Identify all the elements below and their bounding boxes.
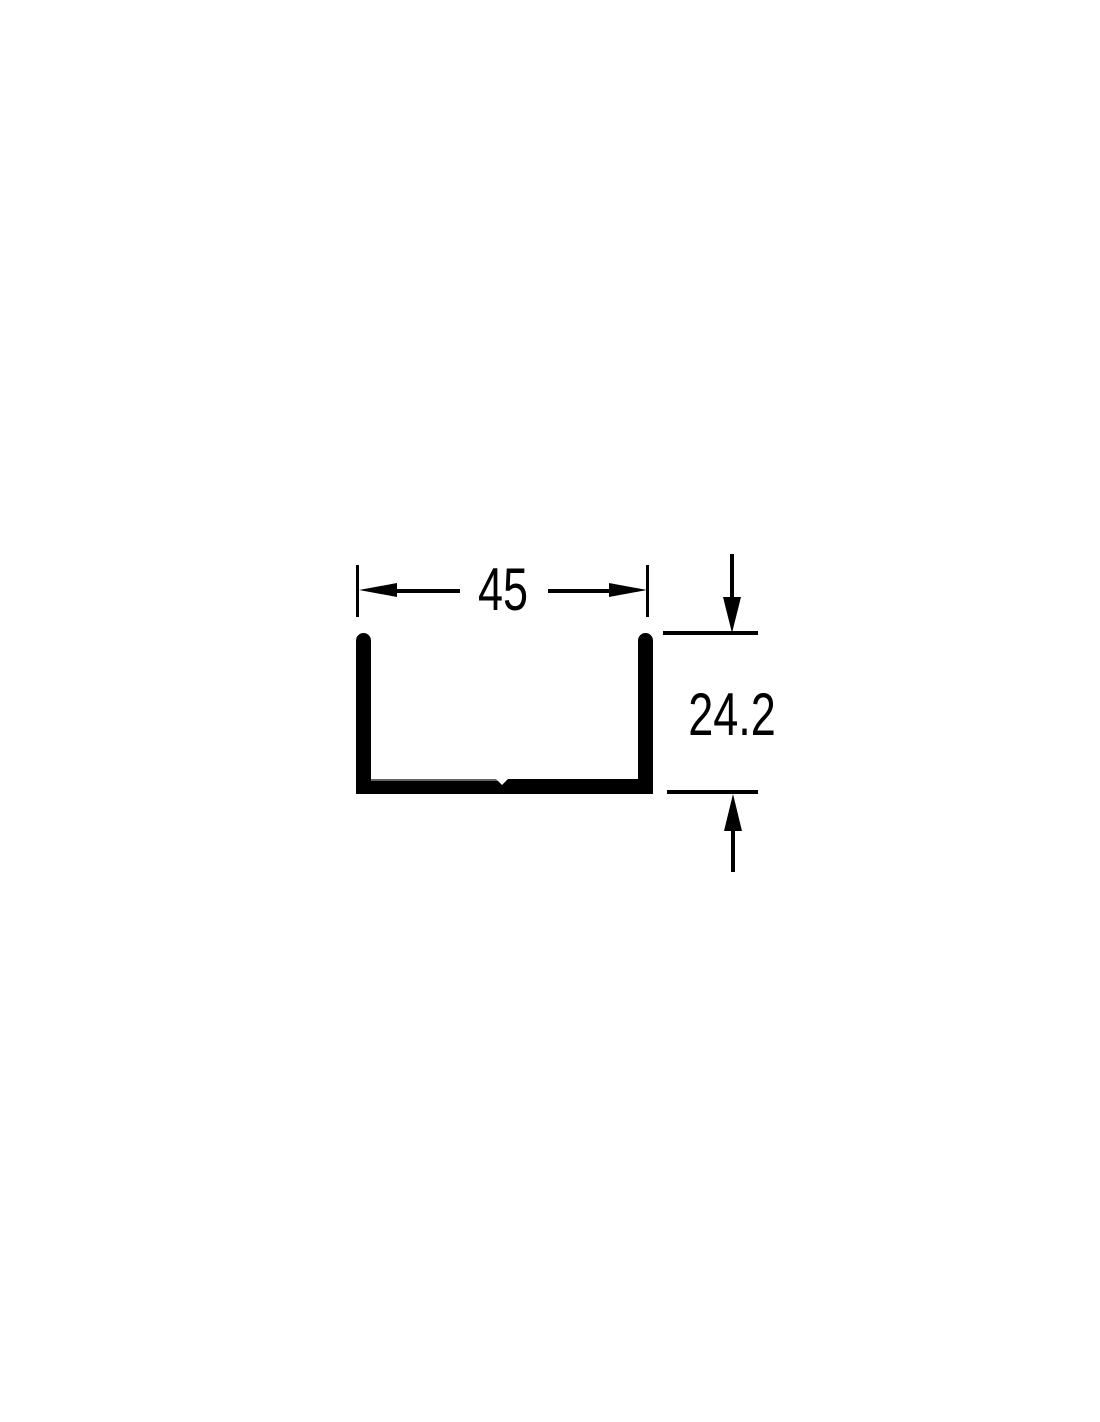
profile-id-notch xyxy=(496,779,508,785)
height-dimension-label: 24.2 xyxy=(688,685,776,745)
height-arrow-down-shaft xyxy=(730,554,734,600)
height-extension-line-bottom xyxy=(667,790,758,794)
height-extension-line-top xyxy=(663,631,758,635)
drawing-canvas: 45 24.2 xyxy=(0,0,1100,1422)
width-dimension-shaft-left xyxy=(395,589,460,593)
height-arrowhead-down-icon xyxy=(723,597,741,633)
width-dimension-shaft-right xyxy=(548,589,609,593)
profile-left-flange xyxy=(356,633,371,794)
profile-right-flange xyxy=(638,633,653,794)
width-dimension-label: 45 xyxy=(478,560,528,620)
height-arrowhead-up-icon xyxy=(724,794,742,831)
width-arrowhead-left-icon xyxy=(359,583,397,597)
width-arrowhead-right-icon xyxy=(609,583,647,597)
height-arrow-up-shaft xyxy=(731,830,735,872)
profile-inner-edge-highlight xyxy=(371,779,498,781)
